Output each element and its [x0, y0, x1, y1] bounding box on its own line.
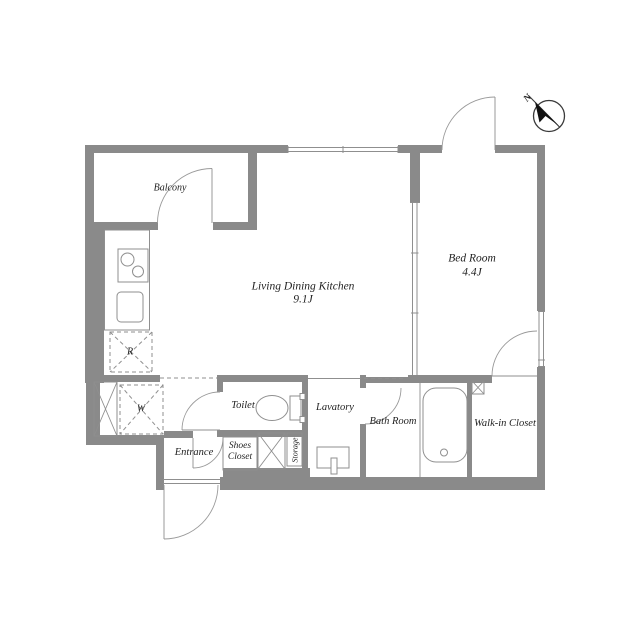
toilet-fixture — [256, 394, 305, 423]
pipe-space-x-box — [472, 381, 484, 394]
walk-in-closet-door — [492, 331, 537, 376]
washer-label: W — [137, 403, 145, 415]
toilet-door — [182, 392, 220, 430]
bedroom-size: 4.4J — [462, 266, 481, 279]
ldk-size: 9.1J — [293, 293, 312, 306]
drain-icon — [441, 449, 448, 456]
entrance-door — [163, 480, 220, 540]
lavatory-label: Lavatory — [316, 402, 354, 414]
bedroom-door — [442, 97, 495, 150]
kitchen-sink — [117, 292, 143, 322]
north-label: N — [521, 92, 534, 105]
balcony-door — [158, 169, 213, 224]
window-right — [538, 311, 545, 367]
bathtub — [420, 383, 467, 477]
bedroom-label: Bed Room — [448, 252, 496, 265]
walk-in-closet-label: Walk-in Closet — [474, 418, 536, 430]
closet-x-box — [94, 382, 117, 436]
sliding-door-partition — [410, 202, 420, 375]
plan-linework: N — [0, 0, 640, 640]
stove — [118, 249, 148, 282]
hall-x-box — [258, 433, 285, 469]
refrigerator-label: R — [127, 346, 133, 358]
compass-icon: N — [521, 92, 564, 132]
balcony-label: Balcony — [154, 182, 187, 194]
lavatory-sink — [317, 447, 349, 474]
storage-label: Storage — [290, 437, 299, 462]
entrance-label: Entrance — [175, 447, 214, 459]
toilet-label: Toilet — [231, 400, 255, 412]
shoes-closet-label: Shoes Closet — [228, 441, 252, 463]
bathroom-label: Bath Room — [370, 416, 417, 428]
floor-plan: N Balcony Living Dining Kitchen 9.1J Bed… — [0, 0, 640, 640]
burner-icon — [121, 253, 134, 266]
window-top — [288, 146, 398, 153]
burner-icon — [133, 266, 144, 277]
ldk-label: Living Dining Kitchen — [252, 280, 355, 293]
kitchen-counter — [105, 230, 150, 330]
